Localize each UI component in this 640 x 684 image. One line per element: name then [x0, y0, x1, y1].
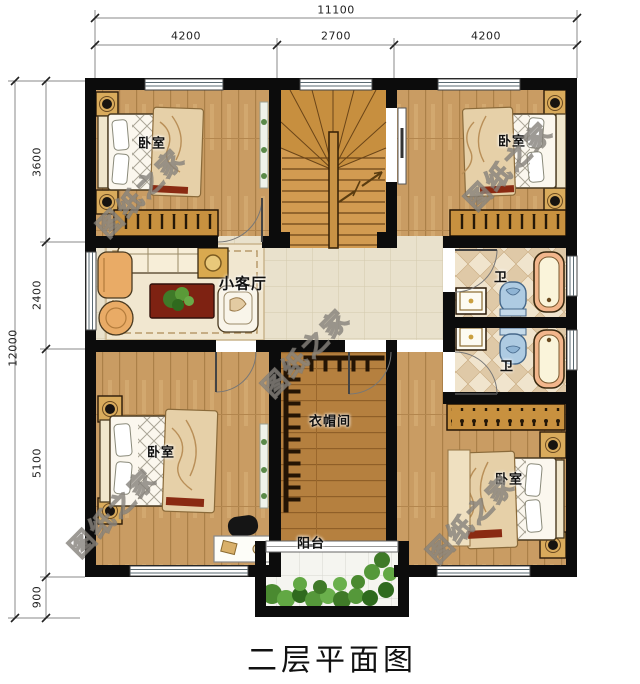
dim-top-seg-1: 4200: [171, 30, 201, 43]
window: [300, 79, 372, 90]
floor-plan-drawing: [0, 0, 640, 684]
room-label-balcony: 阳台: [297, 533, 325, 552]
window: [437, 566, 530, 576]
round-chair: [99, 301, 133, 335]
window: [567, 330, 577, 370]
plan-title: 二层平面图: [247, 635, 417, 679]
window: [438, 79, 520, 90]
dim-top-total: 11100: [317, 4, 355, 17]
balcony-sliding-door: [266, 541, 398, 552]
room-label-bedroom-br: 卧室: [495, 469, 523, 488]
room-label-bedroom-tr: 卧室: [498, 131, 526, 150]
room-label-bath-upper: 卫: [494, 267, 508, 286]
window: [130, 566, 248, 576]
dim-left-total: 12000: [7, 329, 20, 367]
dim-left-seg-1: 3600: [31, 147, 44, 177]
toilet: [500, 282, 526, 312]
window: [567, 256, 577, 296]
room-label-living: 小客厅: [219, 273, 267, 294]
dim-left-seg-2: 2400: [31, 280, 44, 310]
dim-left-seg-3: 5100: [31, 448, 44, 478]
room-label-cloakroom: 衣帽间: [309, 411, 351, 430]
room-label-bath-lower: 卫: [500, 356, 514, 375]
dim-top-seg-2: 2700: [321, 30, 351, 43]
bedside-rug: [448, 450, 470, 546]
floor-plan-page: 11100 4200 2700 4200 12000 3600 2400 510…: [0, 0, 640, 684]
dim-top-seg-3: 4200: [471, 30, 501, 43]
room-label-bedroom-tl: 卧室: [138, 133, 166, 152]
window: [145, 79, 223, 90]
room-label-bedroom-bl: 卧室: [147, 442, 175, 461]
window: [86, 252, 96, 330]
dim-left-seg-4: 900: [31, 586, 44, 609]
chaise: [98, 252, 132, 298]
